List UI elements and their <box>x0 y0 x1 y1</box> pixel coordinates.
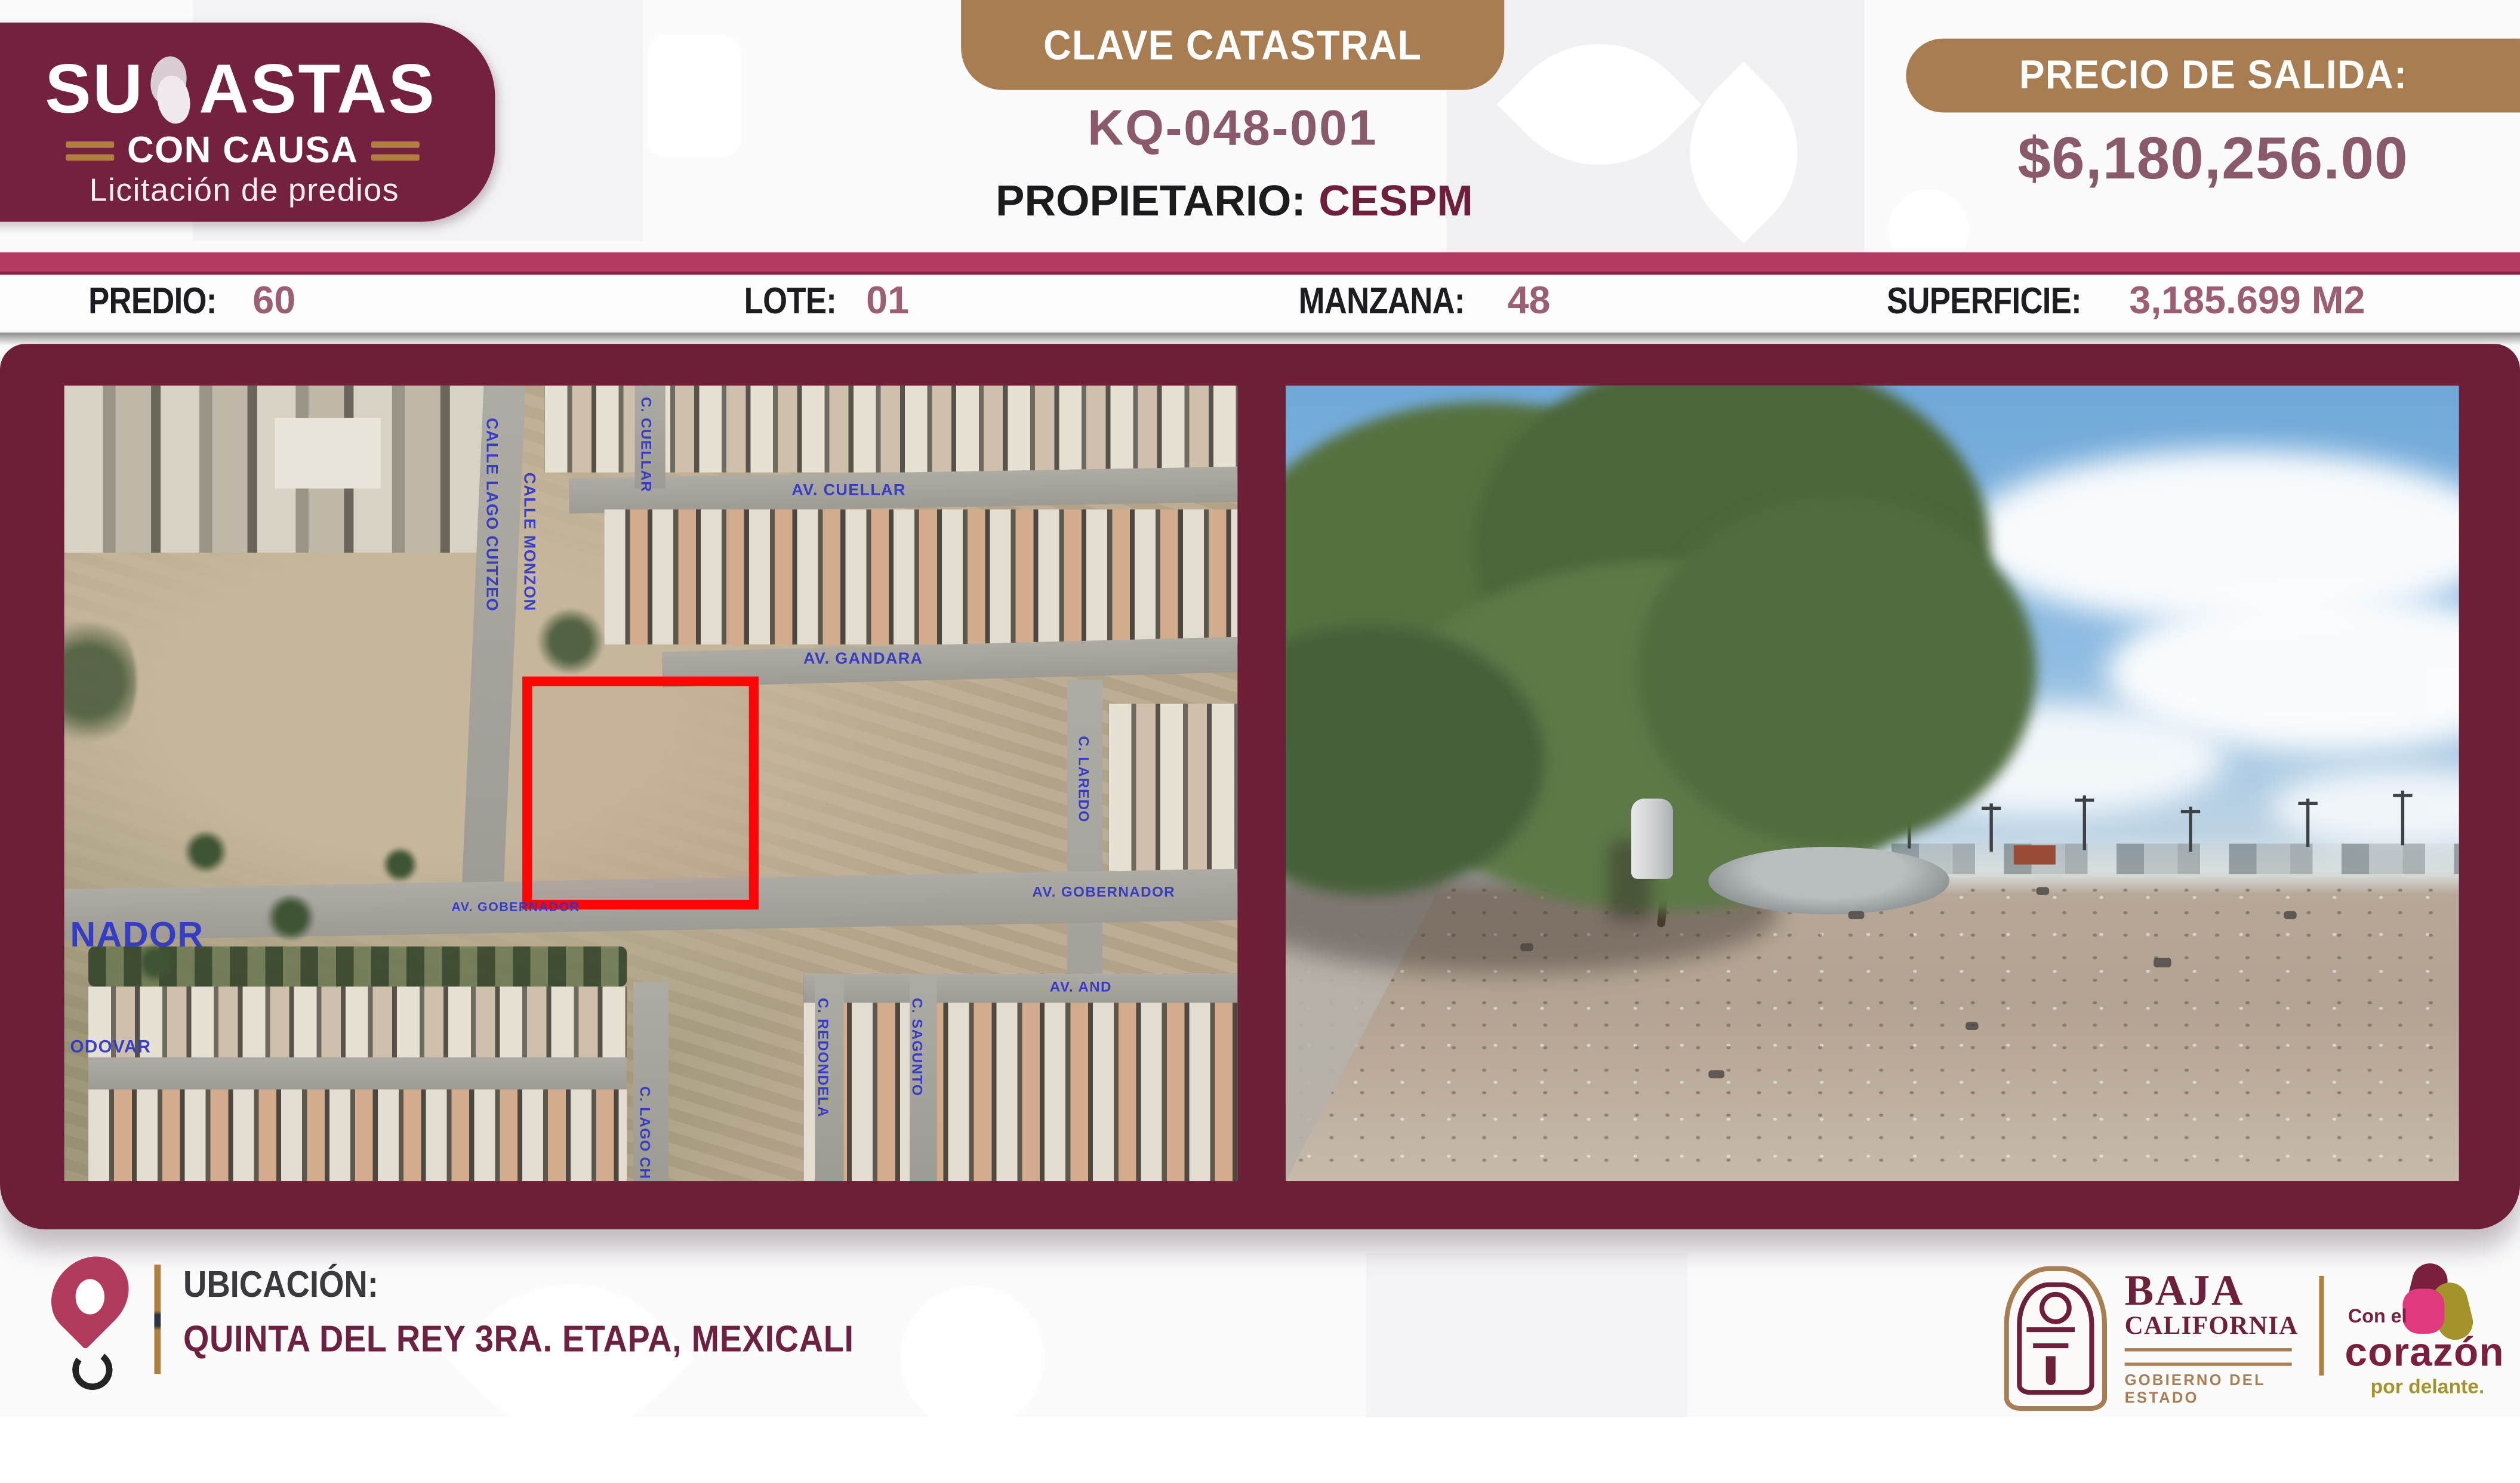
gold-lines-icon <box>66 141 115 160</box>
lote-value: 01 <box>866 280 909 325</box>
street-label: CALLE LAGO CUITZEO <box>482 418 500 612</box>
crimson-divider-bar <box>0 252 2520 275</box>
clave-catastral-code: KQ-048-001 <box>961 100 1504 158</box>
pebble-icon <box>147 56 196 126</box>
map-housing-row <box>88 1090 627 1181</box>
map-tree <box>381 847 420 882</box>
images-panel: CALLE LAGO CUITZEO CALLE MONZON C. CUELL… <box>0 344 2520 1229</box>
logo-subtitle-text: CON CAUSA <box>127 128 358 172</box>
footer-divider-line <box>154 1265 161 1374</box>
gravel-pile <box>1708 847 1949 914</box>
site-photo-image <box>1286 386 2459 1181</box>
street-label: NADOR <box>70 915 204 957</box>
info-superficie: SUPERFICIE: 3,185.699 M2 <box>1887 280 2365 325</box>
map-housing-row <box>604 509 1237 645</box>
power-pole <box>2400 791 2403 846</box>
street-label: AV. CUELLAR <box>791 483 905 501</box>
info-lote: LOTE: 01 <box>744 280 909 325</box>
street-label: CALLE MONZON <box>519 473 537 612</box>
debris <box>2283 911 2296 918</box>
bg-pattern-circle <box>900 1285 1045 1430</box>
bg-pattern-square <box>1366 1253 1688 1417</box>
power-pole <box>2306 799 2309 847</box>
property-info-row: PREDIO: 60 LOTE: 01 MANZANA: 48 SUPERFIC… <box>0 275 2520 332</box>
location-pin-icon <box>45 1257 135 1389</box>
panel-top-shadow <box>0 332 2520 346</box>
gold-lines-icon <box>371 141 420 160</box>
corazon-line1: Con el <box>2348 1305 2407 1327</box>
propietario-label: PROPIETARIO: <box>996 177 1306 225</box>
baja-rule-lines <box>2125 1348 2292 1366</box>
debris <box>1849 911 1865 918</box>
clave-catastral-label: CLAVE CATASTRAL <box>1043 20 1422 70</box>
map-tree <box>264 895 319 939</box>
map-vegetation <box>64 608 137 753</box>
baja-california-wordmark: BAJA CALIFORNIA GOBIERNO DEL ESTADO <box>2125 1269 2305 1408</box>
debris <box>1520 942 1533 950</box>
superficie-value: 3,185.699 M2 <box>2129 280 2365 325</box>
tree-foliage <box>1638 497 2037 847</box>
superficie-label: SUPERFICIE: <box>1887 280 2081 323</box>
corazon-line2: corazón <box>2345 1330 2505 1377</box>
baja-california-crest-icon <box>1998 1266 2107 1405</box>
debris <box>1966 1022 1979 1029</box>
satellite-map-image: CALLE LAGO CUITZEO CALLE MONZON C. CUELL… <box>64 386 1238 1181</box>
baja-line3: GOBIERNO DEL ESTADO <box>2125 1372 2305 1407</box>
street-label: C. SAGUNTO <box>909 998 925 1096</box>
ubicacion-address: QUINTA DEL REY 3RA. ETAPA, MEXICALI <box>183 1318 854 1361</box>
debris <box>2154 958 2172 968</box>
power-pole <box>2084 796 2087 850</box>
auction-flyer: SU ASTAS CON CAUSA Licitación de predios… <box>0 0 2520 1417</box>
parcel-outline-red <box>522 676 758 910</box>
street-label: AV. GOBERNADOR <box>1032 884 1175 900</box>
map-housing-row <box>88 986 627 1057</box>
street-label: ODOVAR <box>70 1038 152 1057</box>
distant-red-structure <box>2013 846 2055 865</box>
power-pole <box>2189 807 2192 852</box>
map-white-roof <box>275 418 381 489</box>
street-label: AV. GANDARA <box>803 651 923 669</box>
precio-salida-label: PRECIO DE SALIDA: <box>2019 53 2407 99</box>
map-vegetation <box>534 608 608 673</box>
map-road-c-almodovar <box>88 1057 627 1089</box>
cloud <box>2271 767 2459 847</box>
map-housing-row <box>1108 704 1237 878</box>
subastas-logo-subtitle: CON CAUSA <box>45 128 440 172</box>
corazon-pink-shape-icon <box>2402 1288 2444 1333</box>
corazon-line3: por delante. <box>2371 1376 2485 1398</box>
street-label: C. LAGO CH <box>637 1086 653 1179</box>
manzana-value: 48 <box>1508 280 1551 325</box>
precio-salida-amount: $6,180,256.00 <box>1906 125 2520 193</box>
power-pole <box>1989 803 1992 852</box>
street-label: C. CUELLAR <box>638 397 654 493</box>
ubicacion-label: UBICACIÓN: <box>183 1263 378 1306</box>
clave-catastral-banner: CLAVE CATASTRAL <box>961 0 1504 90</box>
predio-value: 60 <box>252 280 295 325</box>
map-tree <box>181 831 230 873</box>
logo-title-suffix: ASTAS <box>199 51 436 130</box>
map-housing-block <box>803 975 1237 1182</box>
bg-pattern-rounded-square <box>648 35 741 158</box>
precio-salida-banner: PRECIO DE SALIDA: <box>1906 39 2520 113</box>
subastas-logo: SU ASTAS CON CAUSA Licitación de predios <box>0 23 495 222</box>
bg-pattern-petal <box>1653 61 1835 243</box>
info-manzana: MANZANA: 48 <box>1299 280 1551 325</box>
bg-pattern-petal <box>1497 2 1702 207</box>
manzana-label: MANZANA: <box>1299 280 1465 323</box>
logo-title-prefix: SU <box>45 51 144 130</box>
info-predio: PREDIO: 60 <box>88 280 295 325</box>
logo-tagline: Licitación de predios <box>39 174 450 211</box>
baja-line2: CALIFORNIA <box>2125 1311 2305 1343</box>
street-label: C. LAREDO <box>1076 736 1092 822</box>
debris <box>1708 1069 1724 1077</box>
street-label: AV. GOBERNADOR <box>451 899 580 914</box>
street-label: AV. AND <box>1050 979 1112 995</box>
baja-line1: BAJA <box>2125 1269 2305 1311</box>
subastas-logo-title: SU ASTAS <box>45 51 436 130</box>
lote-label: LOTE: <box>744 280 836 323</box>
predio-label: PREDIO: <box>88 280 217 323</box>
map-road-av-and <box>803 975 1237 1003</box>
corazon-logo: Con el corazón por delante. <box>2335 1263 2515 1407</box>
propietario-value: CESPM <box>1318 177 1473 225</box>
debris <box>2037 887 2050 895</box>
logo-divider-line <box>2319 1276 2324 1376</box>
propietario-line: PROPIETARIO:CESPM <box>833 177 1636 226</box>
street-label: C. REDONDELA <box>815 998 831 1118</box>
white-drum <box>1632 799 1674 880</box>
